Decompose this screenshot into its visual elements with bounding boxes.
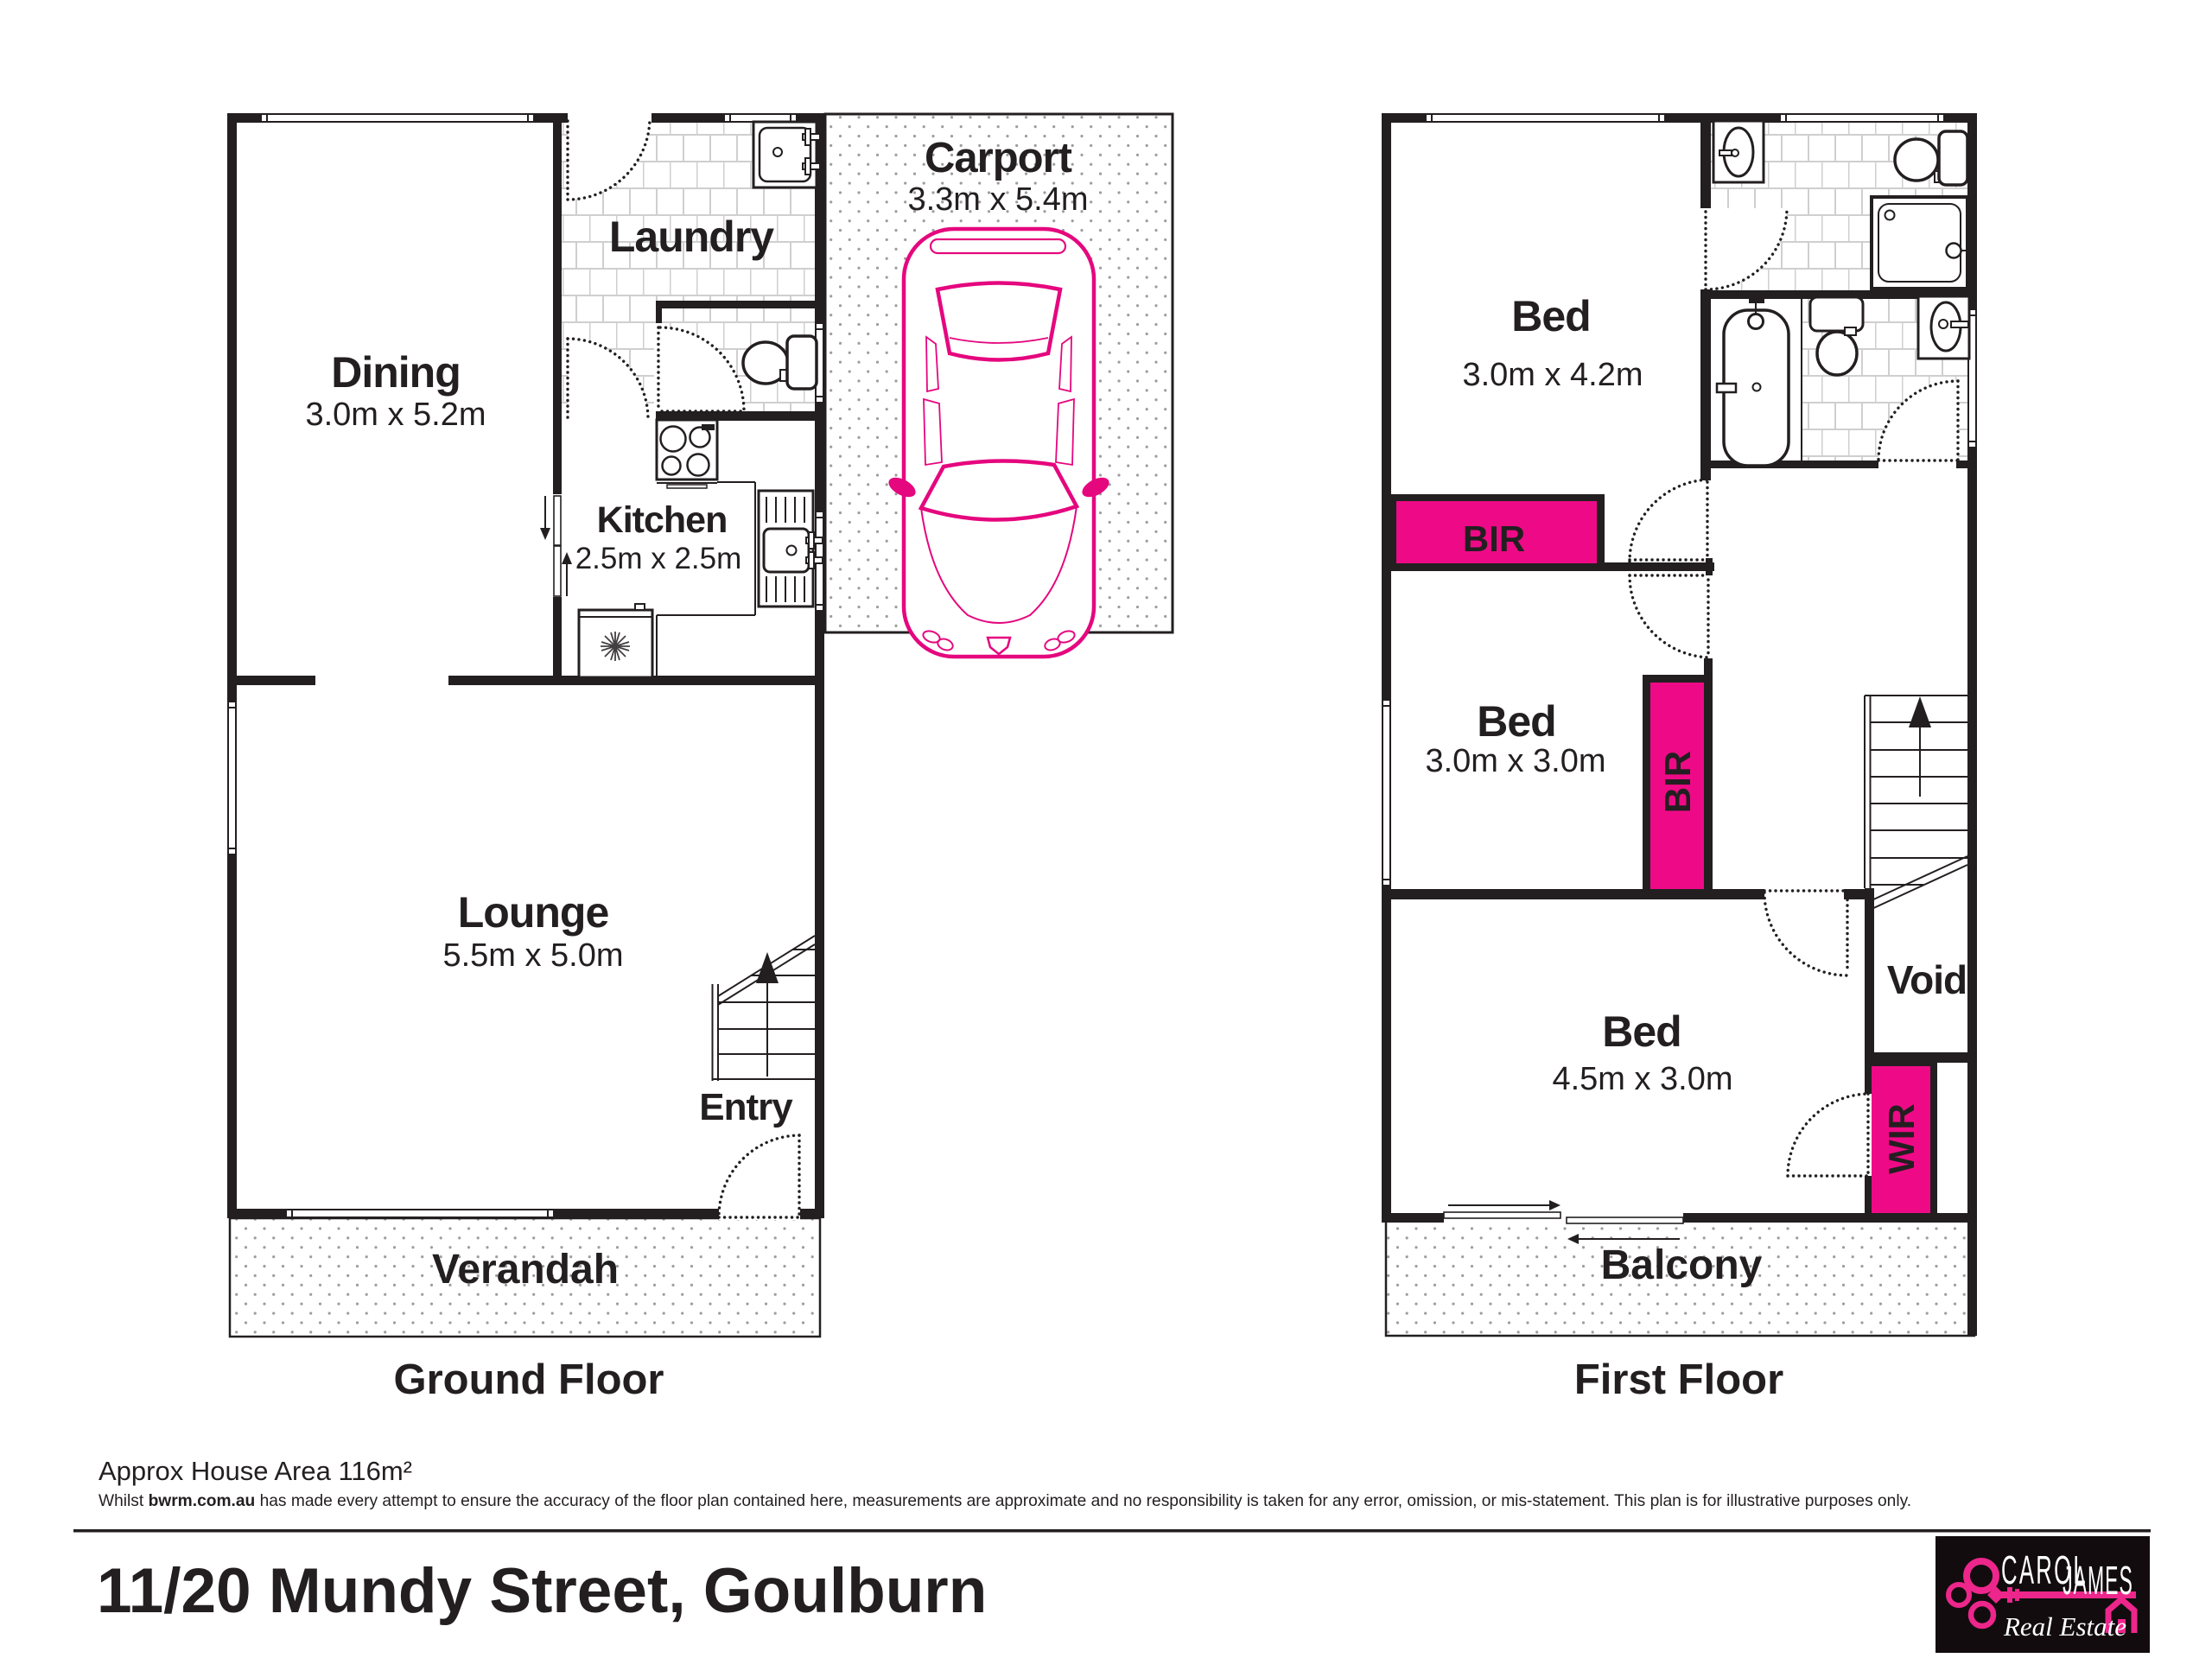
svg-text:3.3m x 5.4m: 3.3m x 5.4m (907, 181, 1088, 218)
svg-text:5.5m x 5.0m: 5.5m x 5.0m (442, 937, 623, 974)
svg-text:Kitchen: Kitchen (597, 499, 728, 541)
svg-text:11/20 Mundy Street, Goulburn: 11/20 Mundy Street, Goulburn (97, 1556, 987, 1626)
svg-text:Approx House Area 116m²: Approx House Area 116m² (99, 1456, 412, 1486)
svg-text:Bed: Bed (1602, 1007, 1681, 1056)
svg-text:Bed: Bed (1477, 697, 1555, 746)
svg-text:3.0m x 4.2m: 3.0m x 4.2m (1462, 357, 1643, 393)
svg-text:Entry: Entry (699, 1086, 793, 1128)
svg-text:BIR: BIR (1463, 518, 1525, 559)
svg-text:Whilst bwrm.com.au has made ev: Whilst bwrm.com.au has made every attemp… (99, 1492, 1911, 1510)
svg-text:Void: Void (1887, 957, 1967, 1002)
svg-text:Ground Floor: Ground Floor (394, 1356, 664, 1403)
svg-text:Bed: Bed (1511, 292, 1590, 340)
svg-text:2.5m x 2.5m: 2.5m x 2.5m (575, 542, 742, 575)
svg-text:3.0m x 3.0m: 3.0m x 3.0m (1425, 743, 1605, 779)
svg-text:4.5m x 3.0m: 4.5m x 3.0m (1552, 1061, 1732, 1097)
svg-text:JAMES: JAMES (2063, 1558, 2133, 1603)
svg-text:Lounge: Lounge (458, 888, 609, 937)
svg-text:3.0m x 5.2m: 3.0m x 5.2m (305, 397, 486, 433)
svg-text:Verandah: Verandah (432, 1247, 619, 1293)
svg-text:BIR: BIR (1657, 751, 1698, 813)
svg-text:Laundry: Laundry (609, 213, 774, 261)
svg-text:First Floor: First Floor (1574, 1356, 1783, 1403)
svg-text:Dining: Dining (331, 348, 461, 397)
svg-text:Carport: Carport (925, 135, 1072, 181)
svg-text:Real Estate: Real Estate (2003, 1611, 2126, 1642)
svg-text:Balcony: Balcony (1601, 1242, 1763, 1288)
svg-text:WIR: WIR (1881, 1103, 1922, 1174)
